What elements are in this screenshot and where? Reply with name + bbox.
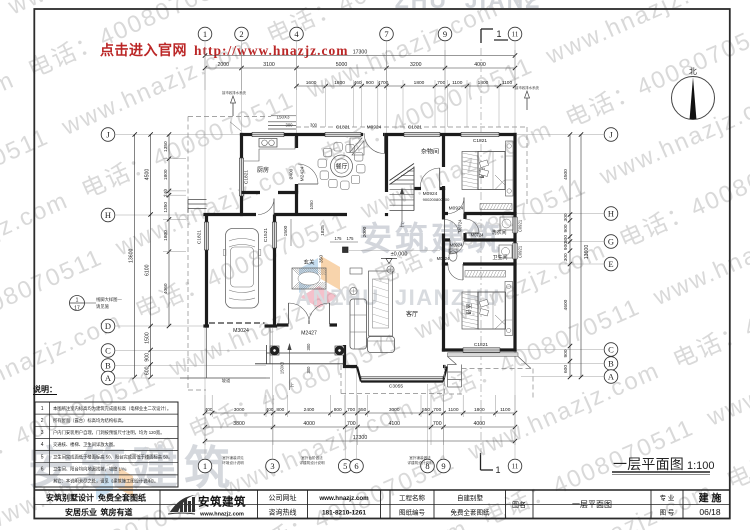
svg-text:300: 300 <box>306 366 311 374</box>
svg-text:E: E <box>608 259 613 269</box>
svg-text:1500: 1500 <box>145 332 151 344</box>
svg-text:公司网址: 公司网址 <box>269 493 297 502</box>
svg-text:B: B <box>105 361 111 371</box>
svg-text:C0921: C0921 <box>518 219 523 232</box>
svg-text:2: 2 <box>41 418 44 424</box>
svg-text:玄关: 玄关 <box>303 258 315 266</box>
svg-text:4000: 4000 <box>474 62 486 68</box>
svg-text:4: 4 <box>41 442 44 448</box>
svg-text:150X3: 150X3 <box>276 115 290 120</box>
svg-text:300: 300 <box>286 123 294 128</box>
svg-text:一层平面图: 一层平面图 <box>572 500 612 509</box>
svg-text:M2427: M2427 <box>301 331 317 337</box>
svg-text:600: 600 <box>563 365 569 373</box>
svg-text:建 施: 建 施 <box>698 492 722 505</box>
svg-text:C3055: C3055 <box>389 384 403 390</box>
svg-text:550: 550 <box>422 407 430 413</box>
svg-text:环境设计说明: 环境设计说明 <box>222 460 244 465</box>
svg-text:免费全套图纸: 免费全套图纸 <box>98 492 146 502</box>
svg-text:800: 800 <box>276 407 284 413</box>
svg-text:460: 460 <box>354 80 362 86</box>
svg-text:3000: 3000 <box>389 407 400 413</box>
svg-text:一层平面图: 一层平面图 <box>613 456 684 472</box>
svg-text:H: H <box>105 210 111 220</box>
svg-text:C1821: C1821 <box>244 170 250 184</box>
svg-text:3000: 3000 <box>234 407 245 413</box>
svg-text:接市政排水系统: 接市政排水系统 <box>222 90 246 95</box>
svg-text:C1821: C1821 <box>474 342 488 348</box>
svg-text:卫生间、阳台均向地漏找坡，坡度 1%。: 卫生间、阳台均向地漏找坡，坡度 1%。 <box>53 466 129 473</box>
svg-text:图 号: 图 号 <box>660 509 675 517</box>
svg-text:900200800900: 900200800900 <box>423 197 450 202</box>
svg-text:1100: 1100 <box>448 407 459 413</box>
svg-text:M0724: M0724 <box>471 233 484 238</box>
svg-text:工程名称: 工程名称 <box>399 493 426 502</box>
svg-text:免费全套图纸: 免费全套图纸 <box>451 508 491 517</box>
svg-text:图纸编号: 图纸编号 <box>399 508 426 517</box>
svg-text:1050: 1050 <box>309 200 314 210</box>
svg-text:4700: 4700 <box>378 80 389 86</box>
svg-text:1800: 1800 <box>478 80 489 86</box>
svg-text:专 业: 专 业 <box>660 493 675 502</box>
svg-text:1825: 1825 <box>320 225 326 236</box>
svg-text:室外台阶做法: 室外台阶做法 <box>301 455 323 460</box>
svg-text:150X3: 150X3 <box>280 361 285 374</box>
svg-text:900: 900 <box>145 353 151 362</box>
svg-text:1800: 1800 <box>414 80 425 86</box>
svg-text:4060: 4060 <box>163 283 169 294</box>
svg-text:11: 11 <box>512 463 519 471</box>
svg-text:详建筑设计说明: 详建筑设计说明 <box>407 460 433 465</box>
svg-text:餐厅: 餐厅 <box>335 163 347 171</box>
svg-text:厨房: 厨房 <box>257 166 269 174</box>
svg-text:700: 700 <box>433 407 441 413</box>
svg-text:G: G <box>608 237 614 247</box>
svg-text:请见施: 请见施 <box>96 303 110 310</box>
svg-text:4000: 4000 <box>473 421 485 427</box>
svg-text:线脚大样图—: 线脚大样图— <box>96 296 122 303</box>
svg-text:900: 900 <box>563 349 569 357</box>
svg-text:筑房有道: 筑房有道 <box>101 507 133 517</box>
svg-text:所有屋面（露台）标高均为结构标高。: 所有屋面（露台）标高均为结构标高。 <box>53 417 126 424</box>
svg-text:4500: 4500 <box>145 169 151 181</box>
svg-text:卫生间完成面低于楼面标高 50、阳台完成面低于楼面标高 50: 卫生间完成面低于楼面标高 50、阳台完成面低于楼面标高 50。 <box>53 453 172 460</box>
svg-text:17300: 17300 <box>353 50 368 56</box>
svg-text:详建筑设计说明: 详建筑设计说明 <box>299 460 325 465</box>
svg-text:C1821: C1821 <box>197 230 203 244</box>
svg-text:接市政排水系统: 接市政排水系统 <box>515 85 539 90</box>
svg-text:1100: 1100 <box>452 80 463 86</box>
svg-text:客厅: 客厅 <box>406 310 418 318</box>
svg-text:900: 900 <box>366 80 374 86</box>
svg-text:3100: 3100 <box>263 62 275 68</box>
svg-text:1: 1 <box>203 29 207 39</box>
svg-text:4600: 4600 <box>563 299 569 310</box>
svg-text:M0924: M0924 <box>450 243 463 248</box>
svg-text:1800: 1800 <box>474 407 485 413</box>
svg-text:5: 5 <box>41 454 44 460</box>
svg-text:www.hnazjz.com: www.hnazjz.com <box>318 495 369 502</box>
svg-text:1100: 1100 <box>500 407 511 413</box>
svg-text:3800: 3800 <box>233 421 245 427</box>
svg-text:6: 6 <box>41 467 44 473</box>
svg-text:175: 175 <box>335 236 343 241</box>
svg-text:2: 2 <box>239 29 243 39</box>
svg-text:6100: 6100 <box>145 264 151 276</box>
svg-text:175: 175 <box>347 236 355 241</box>
svg-text:240: 240 <box>163 189 169 197</box>
svg-text:1: 1 <box>203 461 207 471</box>
svg-text:杂物间: 杂物间 <box>421 148 439 156</box>
svg-text:1350: 1350 <box>163 141 169 152</box>
svg-text:C: C <box>608 345 614 355</box>
svg-text:300: 300 <box>563 213 569 221</box>
svg-text:900: 900 <box>563 242 569 250</box>
svg-text:C1821: C1821 <box>336 125 350 131</box>
svg-text:卧室: 卧室 <box>465 303 473 315</box>
svg-text:2400: 2400 <box>304 407 315 413</box>
svg-text:17300: 17300 <box>353 435 368 441</box>
svg-text:北: 北 <box>689 67 697 76</box>
svg-text:1: 1 <box>76 298 79 304</box>
svg-text:5: 5 <box>343 461 347 471</box>
svg-text:7: 7 <box>384 29 388 39</box>
svg-text:2000: 2000 <box>217 62 229 68</box>
svg-text:4100: 4100 <box>388 421 400 427</box>
svg-text:坡道: 坡道 <box>222 377 231 384</box>
svg-text:卫生间: 卫生间 <box>492 254 507 261</box>
svg-text:M3024: M3024 <box>233 328 249 334</box>
svg-text:550: 550 <box>358 407 366 413</box>
svg-text:800: 800 <box>334 407 342 413</box>
svg-text:300: 300 <box>563 235 569 243</box>
svg-text:1: 1 <box>41 406 44 412</box>
svg-text:A: A <box>105 373 112 383</box>
svg-text:1500: 1500 <box>283 225 289 236</box>
svg-text:4500: 4500 <box>563 169 569 180</box>
svg-text:700: 700 <box>347 407 355 413</box>
svg-text:A: A <box>608 372 615 382</box>
svg-text:600: 600 <box>145 366 151 375</box>
svg-text:6: 6 <box>354 461 358 471</box>
svg-text:1100: 1100 <box>502 80 513 86</box>
svg-text:3: 3 <box>270 461 274 471</box>
svg-text:1800: 1800 <box>334 80 345 86</box>
svg-text:其它：本说明未尽之处，请见《建筑施工图设计说明》。: 其它：本说明未尽之处，请见《建筑施工图设计说明》。 <box>53 478 158 485</box>
svg-text:400: 400 <box>205 407 213 413</box>
svg-text:17: 17 <box>74 306 80 312</box>
svg-text:C1821: C1821 <box>473 138 487 144</box>
svg-text:安居乐业: 安居乐业 <box>65 507 97 517</box>
svg-text:1350: 1350 <box>163 202 169 213</box>
svg-text:3: 3 <box>41 430 44 436</box>
svg-text:700: 700 <box>347 421 356 427</box>
svg-text:www.hnazjz.com: www.hnazjz.com <box>199 512 244 518</box>
svg-text:9: 9 <box>441 461 445 471</box>
svg-text:±0.000: ±0.000 <box>391 252 408 258</box>
svg-text:5000: 5000 <box>336 62 348 68</box>
svg-text:安筑建筑: 安筑建筑 <box>198 495 246 509</box>
svg-text:2000: 2000 <box>362 226 368 237</box>
svg-text:交通核、楼梯、卫生间详放大图。: 交通核、楼梯、卫生间详放大图。 <box>53 441 117 448</box>
svg-text:M0924: M0924 <box>449 206 464 212</box>
svg-text:4000: 4000 <box>303 421 315 427</box>
svg-text:1: 1 <box>495 465 500 475</box>
svg-text:700: 700 <box>433 421 442 427</box>
svg-text:M2424: M2424 <box>300 166 306 181</box>
svg-text:C1821: C1821 <box>408 125 422 131</box>
svg-text:说明：: 说明： <box>33 384 57 394</box>
svg-text:自建别墅: 自建别墅 <box>457 493 484 502</box>
svg-text:1800: 1800 <box>163 169 169 180</box>
svg-text:ZHU JIANZ: ZHU JIANZ <box>395 0 542 13</box>
svg-text:室外铺装做法: 室外铺装做法 <box>409 455 431 460</box>
svg-text:上: 上 <box>290 381 294 387</box>
svg-text:900: 900 <box>563 224 569 232</box>
svg-text:181-8210-1261: 181-8210-1261 <box>322 510 366 517</box>
svg-text:300: 300 <box>563 253 569 261</box>
svg-text:M0924: M0924 <box>367 125 382 131</box>
svg-text:9: 9 <box>443 29 447 39</box>
svg-text:13600: 13600 <box>584 245 590 260</box>
svg-text:1800: 1800 <box>163 230 169 241</box>
svg-text:1: 1 <box>496 29 501 39</box>
svg-text:C: C <box>105 346 111 356</box>
svg-text:B: B <box>608 359 614 369</box>
svg-text:13600: 13600 <box>129 248 135 263</box>
svg-text:安筑别墅设计: 安筑别墅设计 <box>46 492 94 502</box>
svg-text:本图所注室内标高均为建筑完成面标高（电梯业主二次设计）。: 本图所注室内标高均为建筑完成面标高（电梯业主二次设计）。 <box>53 405 171 412</box>
svg-text:咨询热线: 咨询热线 <box>269 508 297 517</box>
svg-text:室外铺装详见: 室外铺装详见 <box>222 455 244 460</box>
svg-text:H: H <box>608 209 614 219</box>
svg-text:300: 300 <box>306 343 311 351</box>
svg-text:户内门安装用户自理，门洞按预留尺寸注明，均为 120宽。: 户内门安装用户自理，门洞按预留尺寸注明，均为 120宽。 <box>53 429 165 436</box>
svg-text:3200: 3200 <box>410 62 422 68</box>
svg-text:350: 350 <box>319 255 325 263</box>
svg-text:1:100: 1:100 <box>687 460 715 472</box>
svg-text:11: 11 <box>512 31 519 39</box>
svg-text:400: 400 <box>266 407 274 413</box>
svg-text:D: D <box>105 321 111 331</box>
svg-text:2400: 2400 <box>289 168 295 179</box>
svg-text:300: 300 <box>310 123 318 128</box>
svg-text:上: 上 <box>399 222 404 229</box>
svg-text:700: 700 <box>437 80 445 86</box>
svg-text:06/18: 06/18 <box>699 507 721 517</box>
svg-text:C0921: C0921 <box>518 245 523 258</box>
svg-text:图名: 图名 <box>512 500 526 509</box>
svg-text:点击进入官网: 点击进入官网 <box>100 42 187 58</box>
svg-text:1600: 1600 <box>306 80 317 86</box>
svg-text:C1521: C1521 <box>263 228 269 242</box>
